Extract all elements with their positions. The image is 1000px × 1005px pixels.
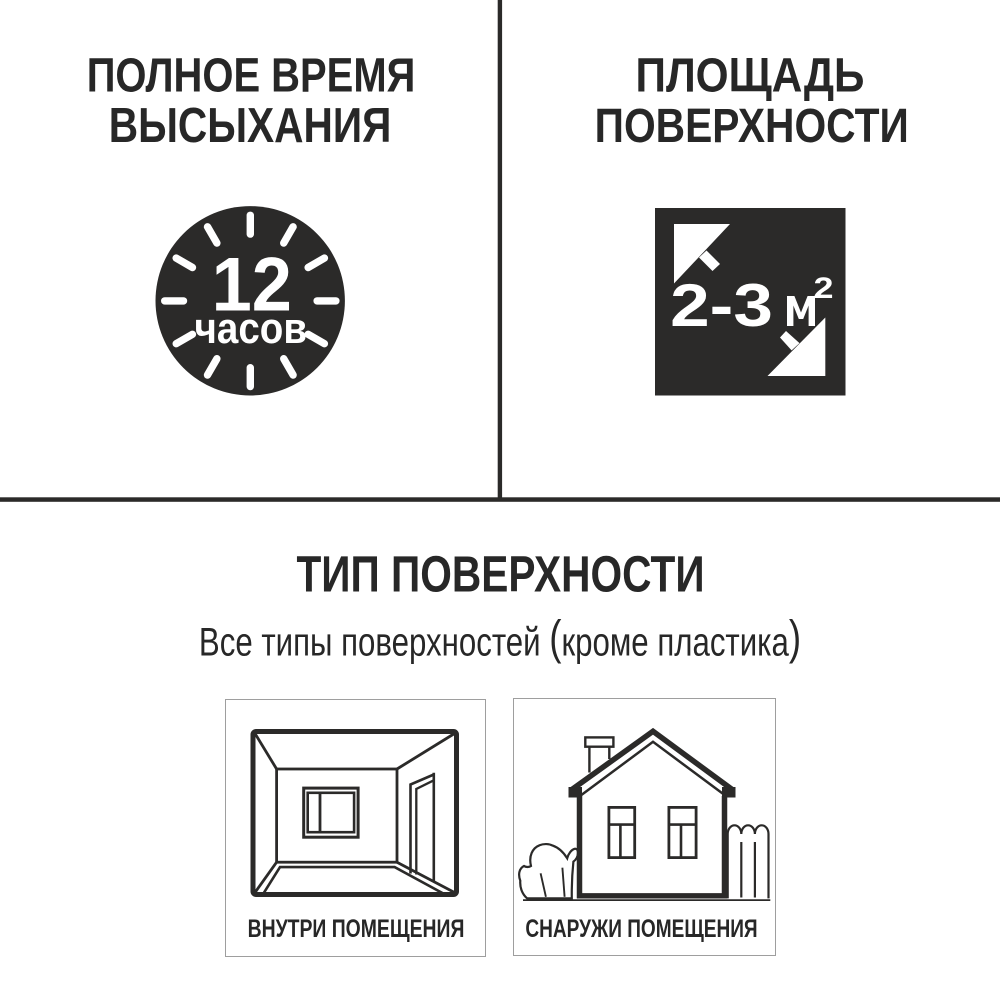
svg-text:ПОВЕРХНОСТИ: ПОВЕРХНОСТИ <box>595 99 909 153</box>
svg-text:часов: часов <box>195 304 307 353</box>
svg-text:ПЛОЩАДЬ: ПЛОЩАДЬ <box>636 48 865 102</box>
svg-text:ВЫСЫХАНИЯ: ВЫСЫХАНИЯ <box>109 97 392 153</box>
svg-text:2: 2 <box>813 271 833 304</box>
svg-text:ВНУТРИ ПОМЕЩЕНИЯ: ВНУТРИ ПОМЕЩЕНИЯ <box>248 915 465 943</box>
svg-text:ПОЛНОЕ ВРЕМЯ: ПОЛНОЕ ВРЕМЯ <box>87 49 416 102</box>
svg-text:ТИП ПОВЕРХНОСТИ: ТИП ПОВЕРХНОСТИ <box>296 545 704 602</box>
svg-text:Все типы поверхностей (кроме п: Все типы поверхностей (кроме пластика) <box>199 611 801 664</box>
svg-text:СНАРУЖИ ПОМЕЩЕНИЯ: СНАРУЖИ ПОМЕЩЕНИЯ <box>525 915 757 943</box>
svg-text:2-3: 2-3 <box>670 271 773 338</box>
